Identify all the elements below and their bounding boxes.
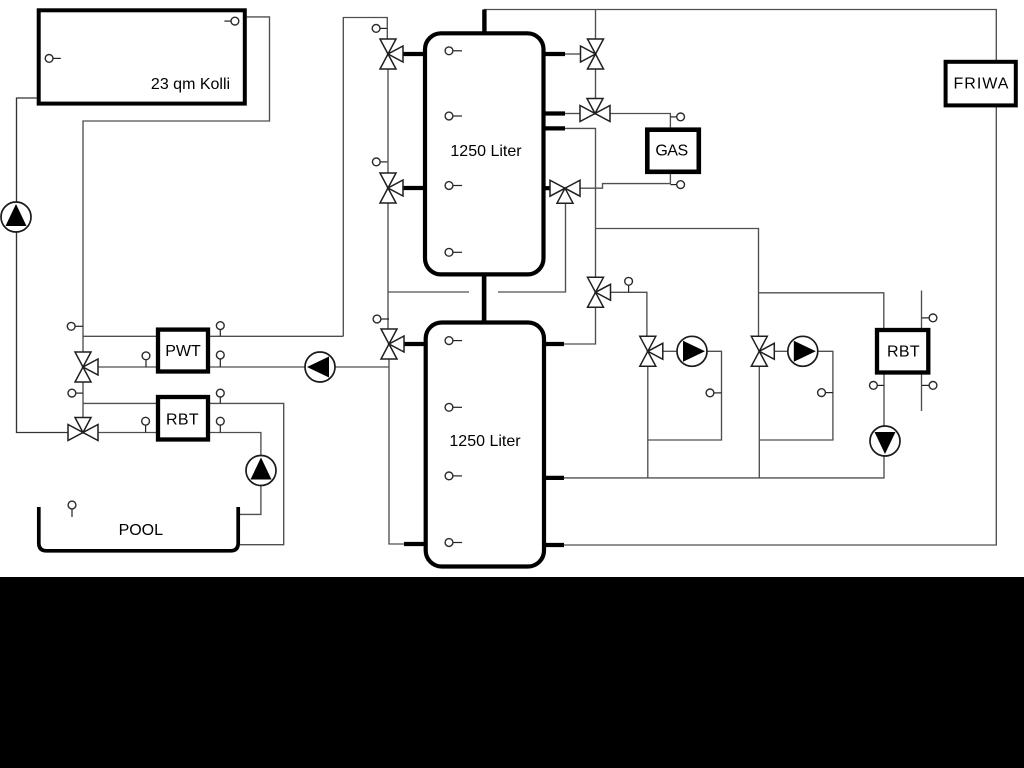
svg-text:23 qm Kolli: 23 qm Kolli	[151, 76, 230, 93]
svg-text:1250 Liter: 1250 Liter	[449, 433, 521, 450]
svg-text:RBT: RBT	[166, 412, 199, 429]
svg-text:PWT: PWT	[165, 343, 201, 360]
svg-text:1250 Liter: 1250 Liter	[450, 143, 522, 160]
svg-text:POOL: POOL	[119, 522, 164, 539]
svg-text:FRIWA: FRIWA	[954, 76, 1010, 93]
svg-text:GAS: GAS	[655, 142, 687, 159]
svg-text:RBT: RBT	[887, 344, 920, 361]
